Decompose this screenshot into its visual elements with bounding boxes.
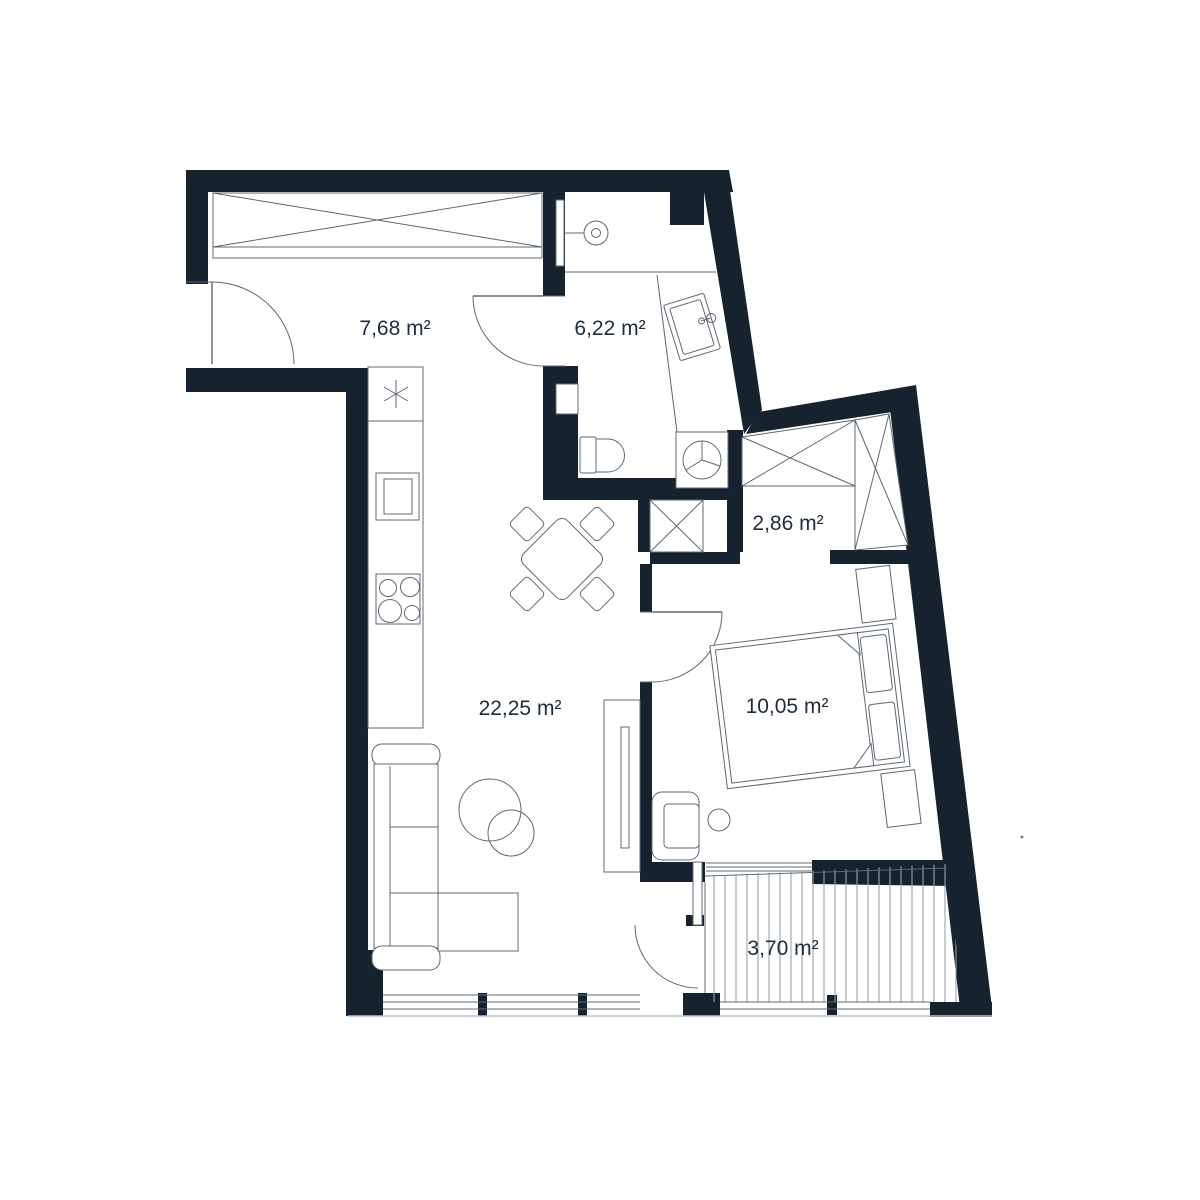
wall-left-exterior: [346, 368, 368, 958]
wall-nook-stub: [638, 498, 650, 552]
nightstand: [881, 770, 921, 828]
sofa-chaise: [438, 893, 518, 951]
shower-head-icon: [584, 221, 608, 245]
wall-bedroom-left-lower: [640, 682, 652, 863]
floor-plan-drawing: 7,68 m² 6,22 m² 2,86 m² 22,25 m² 10,05 m…: [0, 0, 1200, 1200]
sofa-armrest: [372, 744, 440, 766]
wall-bath-shaft: [543, 366, 578, 482]
room-label-wardrobe-room: 2,86 m²: [752, 512, 823, 535]
room-label-bedroom: 10,05 m²: [746, 695, 829, 718]
wall-niche: [556, 384, 578, 414]
entrance-door-swing-arc: [212, 282, 294, 364]
wall-bathroom-slant: [704, 170, 762, 434]
living-room-window: [383, 995, 640, 1009]
wall-hallway-bottom: [186, 368, 368, 392]
coffee-table: [459, 779, 534, 856]
wall-wardrobe-left: [727, 430, 743, 552]
wall-bedroom-left-upper: [640, 564, 652, 612]
washing-machine: [676, 432, 728, 488]
bathroom-sink: [663, 292, 724, 361]
wall-wardrobe-bottom-left: [650, 552, 740, 564]
room-label-balcony: 3,70 m²: [747, 937, 818, 960]
balcony-decking: [705, 864, 956, 1009]
stray-dot: [1021, 836, 1024, 839]
wall-wardrobe-bottom-right: [830, 550, 910, 564]
room-label-living-kitchen: 22,25 m²: [479, 697, 562, 720]
side-table: [708, 809, 730, 831]
wall-corner-bottom-right: [930, 1002, 992, 1017]
entrance-door: [186, 282, 294, 364]
sofa: [372, 744, 518, 970]
bedroom-armchair: [652, 792, 699, 860]
wall-left-top: [186, 170, 208, 284]
kitchen-counter: [368, 367, 423, 728]
room-label-hallway: 7,68 m²: [359, 317, 430, 340]
window-mullion-1: [478, 993, 487, 1016]
shower-glass-panel: [556, 200, 564, 266]
room-label-bathroom: 6,22 m²: [574, 317, 645, 340]
tv-cabinet: [604, 700, 640, 872]
bathroom-door-swing-arc: [473, 296, 543, 366]
wall-top: [186, 170, 733, 192]
balcony-door-swing-arc: [635, 925, 698, 988]
hallway-wardrobe: [213, 193, 542, 258]
window-mullion-2: [578, 993, 587, 1016]
sofa-armrest: [372, 946, 440, 970]
toilet: [580, 437, 625, 473]
bedroom-balcony-window: [706, 863, 812, 871]
wall-bathroom-pier: [670, 192, 704, 225]
balcony-edge-lines: [705, 868, 947, 1009]
nightstand: [856, 565, 896, 623]
dining-set: [509, 506, 616, 613]
balcony-door-leaf: [693, 862, 702, 925]
floor-plan-page: 7,68 m² 6,22 m² 2,86 m² 22,25 m² 10,05 m…: [0, 0, 1200, 1200]
bathroom-counter-edge: [657, 275, 677, 432]
wall-bedroom-bottom: [812, 860, 953, 886]
bathroom-door: [473, 296, 565, 366]
wall-right-exterior: [890, 385, 992, 1008]
